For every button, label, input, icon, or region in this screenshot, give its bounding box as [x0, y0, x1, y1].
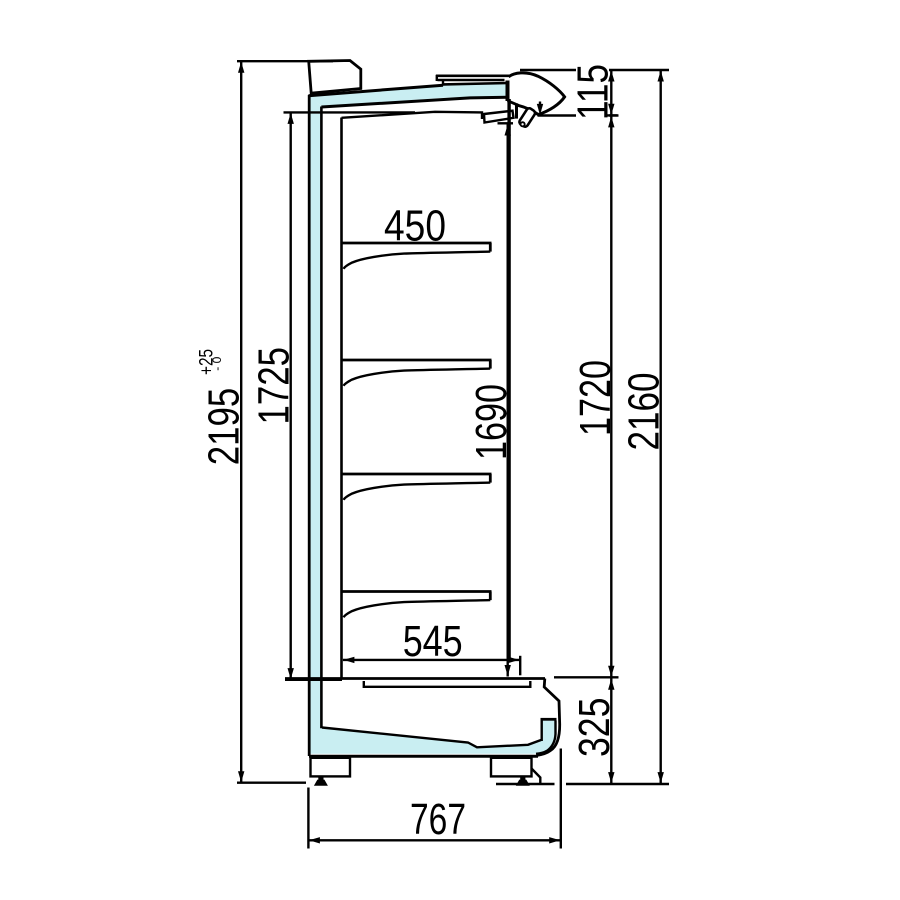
- svg-text:2160: 2160: [620, 373, 669, 451]
- svg-text:450: 450: [384, 201, 446, 250]
- svg-text:- 0: - 0: [212, 357, 224, 371]
- svg-text:115: 115: [569, 64, 618, 120]
- svg-text:1690: 1690: [467, 384, 516, 460]
- svg-text:1720: 1720: [571, 360, 620, 436]
- svg-text:325: 325: [570, 698, 619, 758]
- svg-text:767: 767: [410, 795, 466, 844]
- svg-text:2195: 2195: [200, 388, 249, 466]
- svg-text:1725: 1725: [250, 347, 299, 425]
- svg-text:545: 545: [403, 617, 463, 666]
